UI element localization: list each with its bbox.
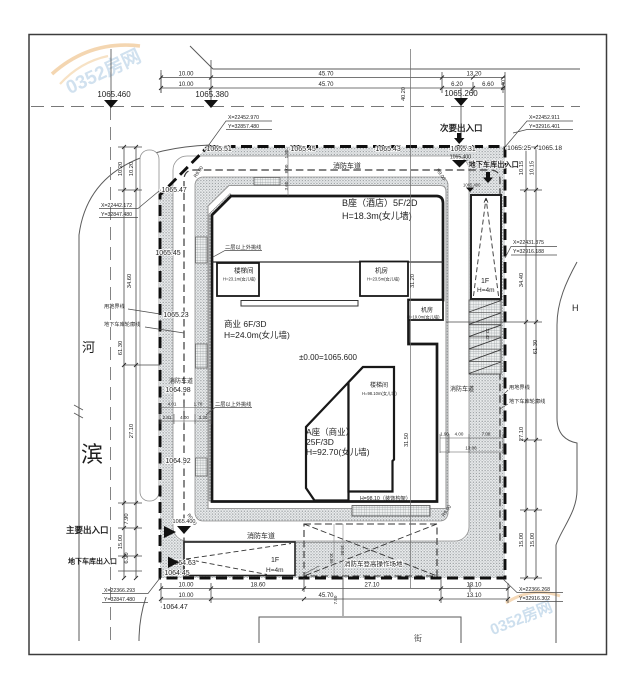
svg-text:10.00: 10.00 (178, 593, 194, 599)
svg-text:Y=32916.302: Y=32916.302 (519, 596, 550, 602)
svg-text:·1065.45: ·1065.45 (288, 146, 316, 153)
svg-text:15.00: 15.00 (519, 533, 525, 548)
svg-text:·1065.31: ·1065.31 (448, 146, 476, 153)
svg-text:1064.98: 1064.98 (165, 387, 190, 394)
svg-text:消防车道: 消防车道 (333, 161, 361, 170)
svg-text:±0.00=1065.600: ±0.00=1065.600 (299, 353, 358, 362)
svg-text:6.20: 6.20 (451, 82, 463, 88)
svg-text:H=23.5m(女儿墙): H=23.5m(女儿墙) (367, 276, 400, 283)
svg-text:34.60: 34.60 (127, 274, 133, 289)
svg-text:滨: 滨 (81, 442, 103, 467)
svg-text:二层以上外挑线: 二层以上外挑线 (225, 243, 261, 251)
svg-text:·1065.51: ·1065.51 (204, 146, 232, 153)
svg-text:18.60: 18.60 (250, 583, 266, 589)
svg-text:H=19.0m(女儿墙): H=19.0m(女儿墙) (407, 314, 440, 321)
svg-text:1065.400: 1065.400 (173, 519, 196, 525)
svg-text:消防车道: 消防车道 (450, 385, 474, 393)
svg-text:消防车道: 消防车道 (169, 377, 193, 385)
svg-text:X=22442.172: X=22442.172 (101, 203, 132, 209)
svg-text:H: H (572, 303, 579, 313)
svg-text:机房: 机房 (421, 306, 433, 314)
svg-text:河: 河 (82, 340, 95, 355)
svg-text:4.00: 4.00 (455, 432, 464, 437)
svg-text:13.10: 13.10 (466, 593, 482, 599)
svg-text:10.20: 10.20 (118, 162, 124, 177)
svg-text:1F: 1F (271, 557, 279, 564)
svg-text:X=22366.268: X=22366.268 (519, 587, 550, 593)
svg-text:1064.92: 1064.92 (165, 458, 190, 465)
svg-text:45.70: 45.70 (318, 593, 334, 599)
svg-text:7.08: 7.08 (482, 432, 491, 437)
svg-text:H=4m: H=4m (266, 567, 284, 574)
svg-text:45.70: 45.70 (318, 82, 334, 88)
svg-text:1F: 1F (481, 278, 489, 285)
svg-text:H=23.1m(女儿墙): H=23.1m(女儿墙) (223, 276, 256, 283)
svg-text:15.00: 15.00 (118, 535, 124, 550)
svg-text:地下车库出入口: 地下车库出入口 (469, 160, 519, 169)
svg-text:10.15: 10.15 (519, 161, 525, 176)
svg-text:10.15: 10.15 (530, 161, 536, 176)
svg-text:A座（商业）: A座（商业） (306, 427, 354, 437)
svg-text:6.90: 6.90 (124, 552, 130, 563)
svg-text:10.00: 10.00 (178, 72, 194, 78)
svg-text:1065.45: 1065.45 (155, 250, 180, 257)
svg-text:2.81: 2.81 (163, 415, 172, 420)
svg-text:消防车登高操作场地: 消防车登高操作场地 (344, 559, 403, 568)
svg-text:1065.380: 1065.380 (195, 90, 229, 99)
svg-text:16.04: 16.04 (340, 545, 345, 556)
svg-text:用地界线: 用地界线 (509, 383, 530, 391)
svg-text:X=22366.293: X=22366.293 (104, 588, 135, 594)
svg-text:街: 街 (414, 633, 422, 643)
svg-text:·1065.25: ·1065.25 (505, 145, 531, 152)
svg-text:10.06: 10.06 (329, 553, 334, 564)
svg-text:楼梯间: 楼梯间 (370, 381, 388, 389)
svg-text:H=24.0m(女儿墙): H=24.0m(女儿墙) (224, 330, 290, 340)
svg-text:13.06: 13.06 (465, 446, 477, 451)
svg-text:27.10: 27.10 (364, 583, 380, 589)
svg-text:1065.23: 1065.23 (163, 312, 188, 319)
svg-text:H=92.70(女儿墙): H=92.70(女儿墙) (306, 447, 370, 457)
svg-text:6.60: 6.60 (482, 82, 494, 88)
svg-text:34.40: 34.40 (519, 273, 525, 288)
svg-text:10.00: 10.00 (178, 82, 194, 88)
svg-text:45.70: 45.70 (318, 72, 334, 78)
svg-text:楼梯间: 楼梯间 (234, 266, 254, 275)
svg-text:61.30: 61.30 (533, 340, 539, 355)
svg-text:7.50: 7.50 (333, 595, 338, 604)
svg-text:二层以上外挑线: 二层以上外挑线 (215, 400, 251, 408)
svg-text:Y=32916.188: Y=32916.188 (513, 249, 544, 255)
svg-text:用地界线: 用地界线 (104, 302, 125, 310)
svg-text:4.00: 4.00 (180, 415, 189, 420)
svg-text:次要出入口: 次要出入口 (440, 123, 483, 133)
svg-text:10.00: 10.00 (178, 583, 194, 589)
svg-text:27.10: 27.10 (519, 427, 525, 442)
svg-text:·1065.43: ·1065.43 (373, 146, 401, 153)
svg-text:H=18.3m(女儿墙): H=18.3m(女儿墙) (342, 210, 412, 221)
svg-text:X=22431.375: X=22431.375 (513, 240, 544, 246)
svg-text:1065.400: 1065.400 (463, 183, 481, 188)
svg-text:15.00: 15.00 (530, 533, 536, 548)
svg-text:7.90: 7.90 (124, 513, 130, 524)
svg-text:地下车库轮廓线: 地下车库轮廓线 (509, 397, 545, 405)
svg-text:·1065.47: ·1065.47 (159, 187, 187, 194)
svg-text:1065.460: 1065.460 (97, 90, 131, 99)
svg-text:主要出入口: 主要出入口 (66, 525, 109, 535)
svg-text:1064.45: 1064.45 (164, 570, 189, 577)
svg-text:地下车库轮廓线: 地下车库轮廓线 (104, 320, 140, 328)
svg-text:H=98.10m(女儿墙): H=98.10m(女儿墙) (362, 390, 397, 397)
svg-text:27.10: 27.10 (129, 424, 135, 439)
svg-text:H=98.10（装饰构架）: H=98.10（装饰构架） (360, 494, 411, 502)
svg-text:B座（酒店）5F/2D: B座（酒店）5F/2D (342, 197, 418, 208)
svg-text:10.20: 10.20 (129, 162, 135, 177)
svg-text:25F/3D: 25F/3D (306, 437, 334, 447)
svg-text:1.90: 1.90 (440, 432, 449, 437)
svg-text:4.01: 4.01 (168, 402, 177, 407)
svg-text:1.70: 1.70 (194, 402, 203, 407)
svg-text:X=22452.911: X=22452.911 (529, 115, 560, 121)
svg-text:3.30: 3.30 (199, 415, 208, 420)
svg-text:Y=32857.480: Y=32857.480 (228, 124, 259, 130)
svg-text:X=22452.970: X=22452.970 (228, 115, 259, 121)
svg-text:40.20: 40.20 (401, 87, 407, 101)
svg-text:31.50: 31.50 (404, 433, 410, 447)
svg-text:地下车库出入口: 地下车库出入口 (68, 557, 117, 566)
svg-text:61.30: 61.30 (118, 341, 124, 356)
svg-text:Y=32916.401: Y=32916.401 (529, 124, 560, 130)
svg-text:消防车道: 消防车道 (247, 531, 275, 540)
svg-text:·1064.47: ·1064.47 (160, 604, 188, 611)
svg-text:H=4m: H=4m (477, 287, 495, 294)
svg-text:31.20: 31.20 (410, 274, 416, 288)
svg-text:机房: 机房 (375, 266, 388, 275)
svg-text:·1065.18: ·1065.18 (536, 145, 562, 152)
svg-text:13.10: 13.10 (466, 583, 482, 589)
svg-text:Y=32847.480: Y=32847.480 (101, 212, 132, 218)
svg-text:0.40: 0.40 (501, 80, 507, 90)
svg-text:Y=32847.480: Y=32847.480 (104, 597, 135, 603)
svg-text:23.42: 23.42 (485, 328, 490, 340)
svg-text:商业 6F/3D: 商业 6F/3D (224, 319, 267, 329)
svg-text:1065.260: 1065.260 (444, 89, 478, 98)
